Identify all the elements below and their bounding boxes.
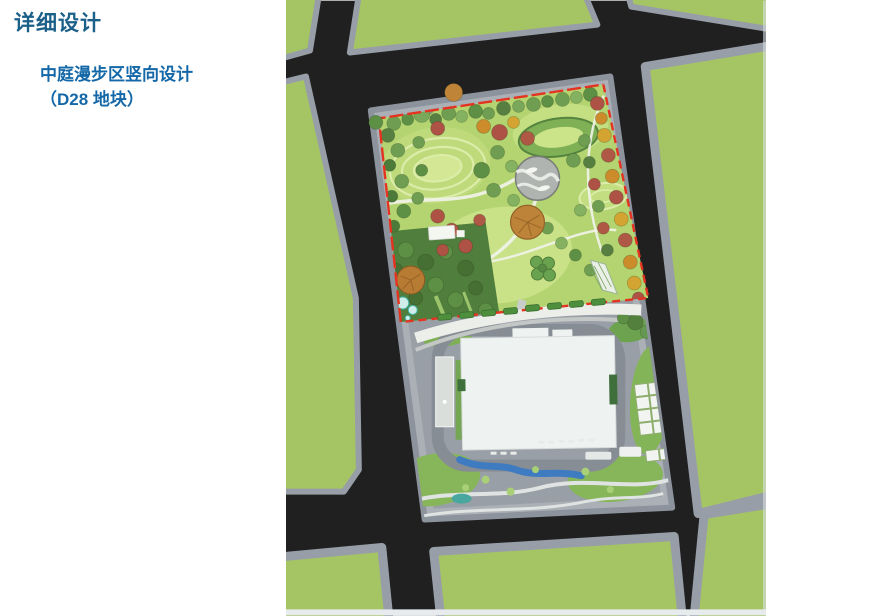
image-edge bbox=[286, 609, 766, 615]
site-plan-rendering bbox=[286, 0, 766, 616]
pond bbox=[452, 494, 472, 504]
overhang-tree bbox=[445, 83, 463, 101]
presentation-slide: 详细设计 中庭漫步区竖向设计 （D28 地块） bbox=[0, 0, 872, 616]
courtyard-park bbox=[376, 84, 648, 322]
main-building bbox=[457, 327, 619, 451]
overhang-tree bbox=[369, 115, 383, 129]
big-orange-tree bbox=[511, 205, 545, 239]
image-edge bbox=[763, 1, 766, 616]
subtitle-line-1: 中庭漫步区竖向设计 bbox=[40, 62, 193, 87]
annex-building bbox=[436, 357, 454, 427]
circular-plaza bbox=[516, 156, 560, 200]
clover-planting bbox=[530, 256, 555, 281]
page-title: 详细设计 bbox=[14, 7, 102, 37]
subtitle-block: 中庭漫步区竖向设计 （D28 地块） bbox=[40, 62, 193, 112]
title-panel: 详细设计 中庭漫步区竖向设计 （D28 地块） bbox=[0, 0, 286, 616]
subtitle-line-2: （D28 地块） bbox=[40, 87, 193, 112]
site-plan-svg bbox=[286, 0, 766, 616]
